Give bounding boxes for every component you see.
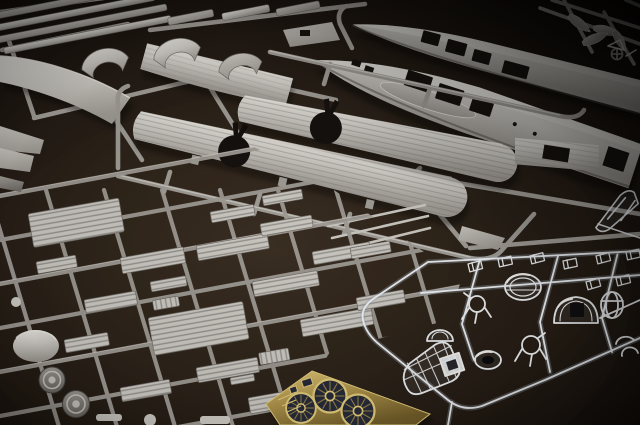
corner-shading <box>0 0 640 425</box>
model-kit-photo <box>0 0 640 425</box>
